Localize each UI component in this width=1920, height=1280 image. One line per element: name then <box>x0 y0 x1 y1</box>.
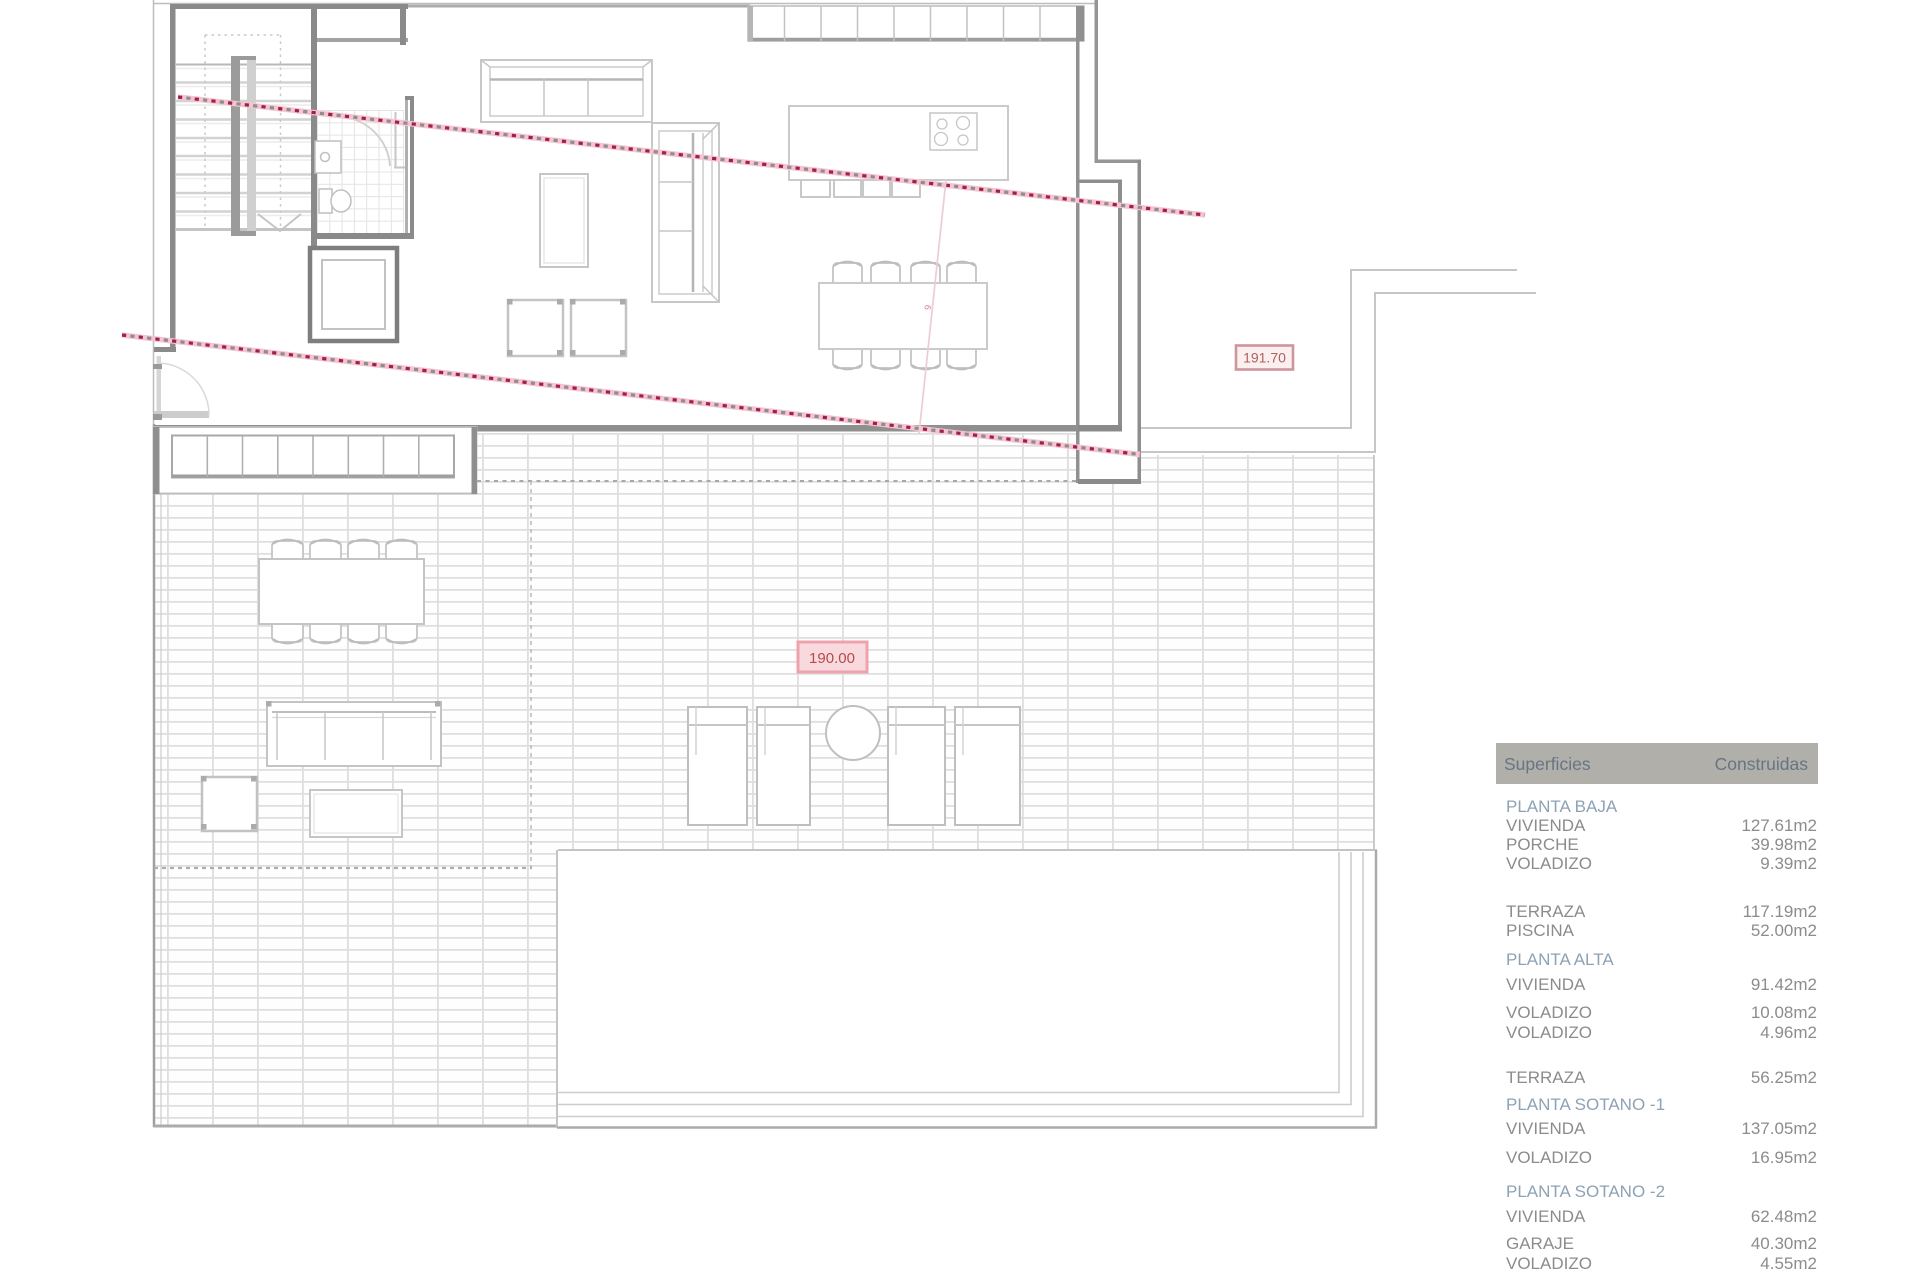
svg-text:56.25m2: 56.25m2 <box>1751 1068 1817 1087</box>
svg-text:VIVIENDA: VIVIENDA <box>1506 1207 1586 1226</box>
svg-text:191.70: 191.70 <box>1243 350 1286 366</box>
svg-text:39.98m2: 39.98m2 <box>1751 835 1817 854</box>
svg-text:VIVIENDA: VIVIENDA <box>1506 975 1586 994</box>
svg-text:9.39m2: 9.39m2 <box>1760 854 1817 873</box>
svg-text:PLANTA ALTA: PLANTA ALTA <box>1506 950 1614 969</box>
svg-text:127.61m2: 127.61m2 <box>1741 816 1817 835</box>
svg-text:10.08m2: 10.08m2 <box>1751 1003 1817 1022</box>
svg-text:190.00: 190.00 <box>809 650 855 667</box>
svg-text:VOLADIZO: VOLADIZO <box>1506 1023 1592 1042</box>
svg-text:VOLADIZO: VOLADIZO <box>1506 1003 1592 1022</box>
svg-text:4.55m2: 4.55m2 <box>1760 1254 1817 1273</box>
svg-text:VIVIENDA: VIVIENDA <box>1506 816 1586 835</box>
svg-text:TERRAZA: TERRAZA <box>1506 902 1586 921</box>
svg-text:PLANTA SOTANO -1: PLANTA SOTANO -1 <box>1506 1095 1665 1114</box>
svg-text:Superficies: Superficies <box>1504 754 1591 774</box>
svg-text:Construidas: Construidas <box>1715 754 1809 774</box>
svg-text:PLANTA SOTANO -2: PLANTA SOTANO -2 <box>1506 1182 1665 1201</box>
svg-text:PISCINA: PISCINA <box>1506 921 1575 940</box>
svg-text:GARAJE: GARAJE <box>1506 1234 1574 1253</box>
svg-text:VOLADIZO: VOLADIZO <box>1506 854 1592 873</box>
svg-text:91.42m2: 91.42m2 <box>1751 975 1817 994</box>
svg-text:62.48m2: 62.48m2 <box>1751 1207 1817 1226</box>
svg-text:52.00m2: 52.00m2 <box>1751 921 1817 940</box>
svg-text:137.05m2: 137.05m2 <box>1741 1119 1817 1138</box>
svg-text:4.96m2: 4.96m2 <box>1760 1023 1817 1042</box>
svg-text:40.30m2: 40.30m2 <box>1751 1234 1817 1253</box>
svg-text:TERRAZA: TERRAZA <box>1506 1068 1586 1087</box>
svg-text:VOLADIZO: VOLADIZO <box>1506 1148 1592 1167</box>
svg-text:VOLADIZO: VOLADIZO <box>1506 1254 1592 1273</box>
svg-text:16.95m2: 16.95m2 <box>1751 1148 1817 1167</box>
svg-text:PORCHE: PORCHE <box>1506 835 1579 854</box>
svg-text:PLANTA BAJA: PLANTA BAJA <box>1506 797 1618 816</box>
svg-text:117.19m2: 117.19m2 <box>1743 902 1817 921</box>
svg-text:VIVIENDA: VIVIENDA <box>1506 1119 1586 1138</box>
